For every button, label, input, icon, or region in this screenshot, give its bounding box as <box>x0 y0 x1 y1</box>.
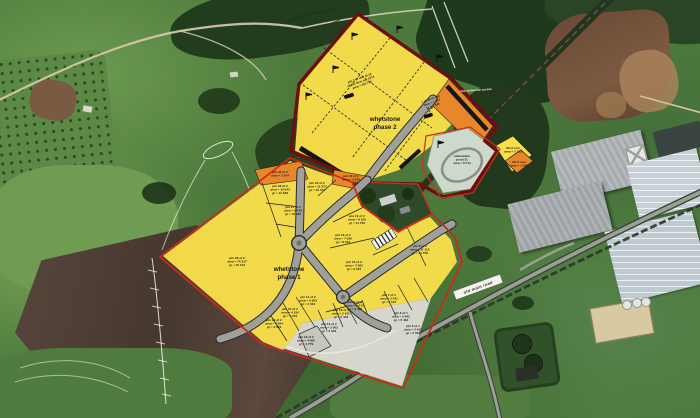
parcel-label: gr = 8 941 <box>336 240 351 244</box>
parcel-label: gr = 4 254 <box>283 314 298 318</box>
parcel-label: gr = 4 523 <box>267 325 282 329</box>
parcel-label: area = 1 978 <box>510 164 528 168</box>
parcel-label: gr = 16 142 <box>229 263 245 267</box>
parcel-label: gr = 11 479 <box>349 221 365 225</box>
parcel-label: gr = 4 313 <box>301 302 316 306</box>
phase2-title-line1: whetstone <box>369 116 401 123</box>
parcel-label: area = 2 123 <box>504 150 522 154</box>
aerial-site-plan-map[interactable]: whetstone phase 2 whetstone phase 1 ptn … <box>0 0 700 418</box>
note-line: area = 8 714 <box>453 161 470 165</box>
pedestrian-note: new pedestrian access <box>460 87 492 93</box>
parcel-label: gr = 9 091 <box>347 267 362 271</box>
parcel-label: gr = 11 758 <box>412 251 428 255</box>
phase1-plan <box>160 158 462 388</box>
parcel-label: gr = 12 569 <box>272 191 288 195</box>
parcel-label: gr = 3 944 <box>322 329 337 333</box>
parcel-label: gr = 2 547 <box>382 300 397 304</box>
parcel-label: gr = 10 005 <box>285 212 301 216</box>
parcel-label: gr = 4 779 <box>299 342 314 346</box>
parcel-label: gr = 2 432 <box>334 315 349 319</box>
phase2-title-line2: phase 2 <box>373 124 397 131</box>
phase1-title-line1: whetstone <box>273 266 305 273</box>
parcel-label: gr = 3 437 <box>348 307 363 311</box>
phase1-title-line2: phase 1 <box>277 274 301 281</box>
parcel-label: area = 2 164 <box>271 174 289 178</box>
parcel-label: gr = 10 372 <box>309 188 325 192</box>
parcel-label: area = 2 058 <box>342 178 360 182</box>
parcel-label: gr = 2 654 <box>406 331 421 335</box>
roundabout <box>291 235 307 251</box>
parcel-label: gr = 5 432 <box>394 318 409 322</box>
site-plan-overlay: whetstone phase 2 whetstone phase 1 ptn … <box>0 0 700 418</box>
